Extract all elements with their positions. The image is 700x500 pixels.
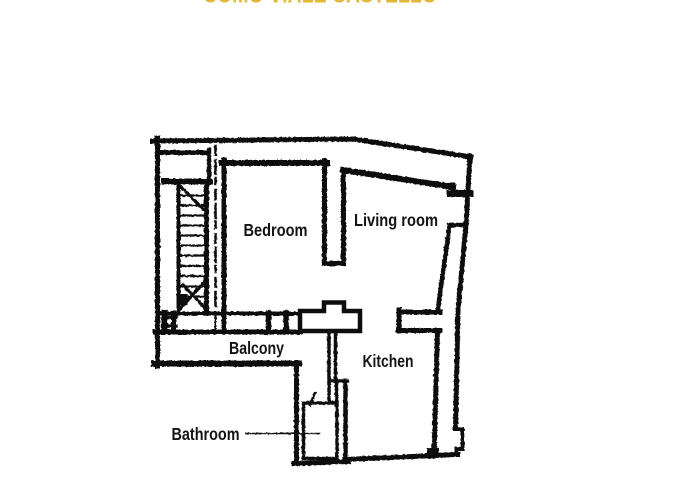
svg-text:Living room: Living room (354, 210, 438, 230)
svg-text:Bathroom: Bathroom (172, 424, 240, 444)
svg-text:COMO VIALE CASTELLO: COMO VIALE CASTELLO (203, 0, 437, 8)
svg-text:Kitchen: Kitchen (363, 351, 414, 371)
svg-text:Balcony: Balcony (229, 338, 284, 358)
svg-text:Bedroom: Bedroom (244, 220, 308, 240)
